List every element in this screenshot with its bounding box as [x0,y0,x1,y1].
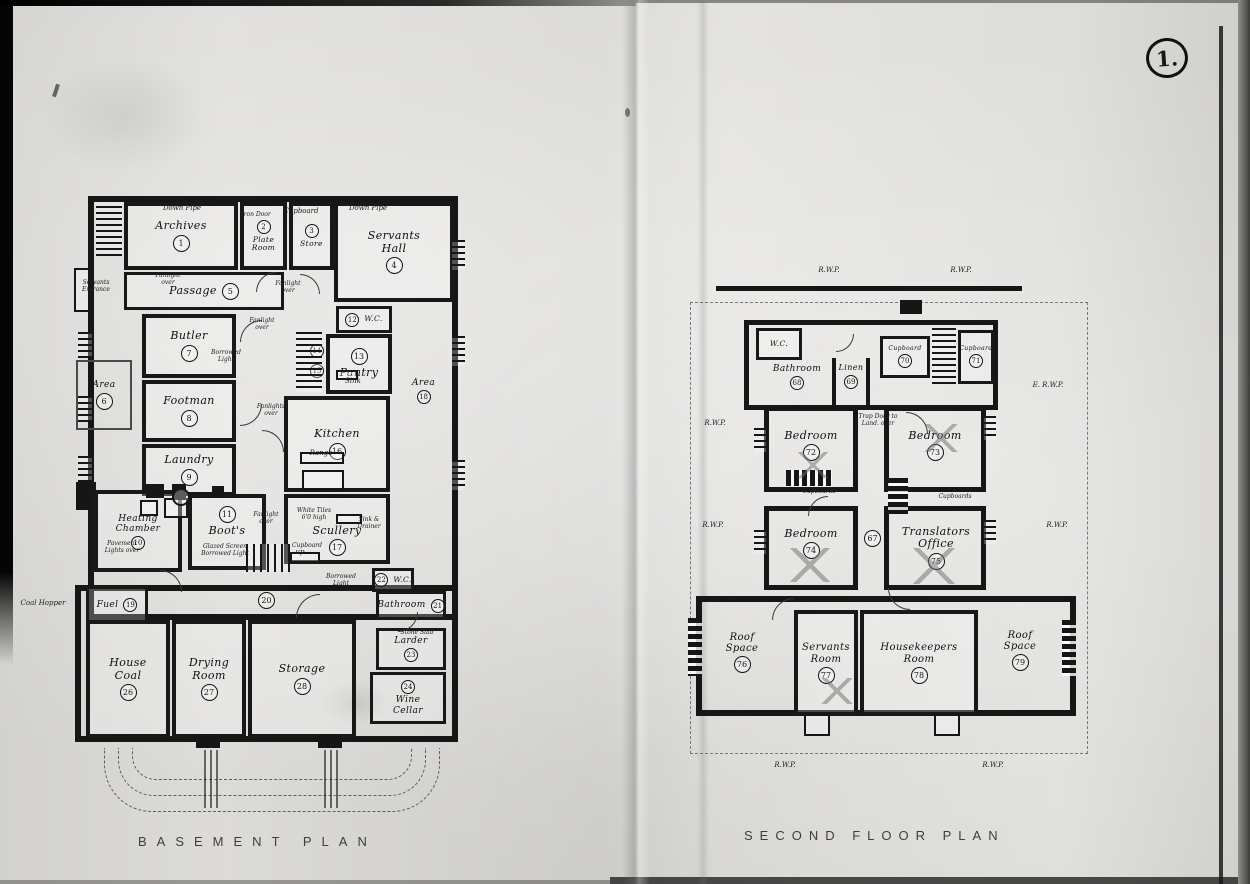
solid-wall-block [146,484,164,498]
room-number-circle: 20 [258,592,275,609]
paper-stain [40,55,210,175]
room-number-circle: 13 [351,348,368,365]
room-number-circle: 24 [401,680,415,694]
page-number: 1. [1155,45,1179,71]
room-wc-12: 12 W.C. [336,306,392,333]
room-archives: Archives 1 [124,202,238,270]
room-wc-22: 22 W.C. [372,568,414,592]
note-fanlight-over: Fanlight over [242,318,282,332]
room-footman: Footman 8 [142,380,236,442]
room-linen: Linen 69 [836,364,866,389]
note-cupboards: Cupboards [798,489,840,496]
note-rwp: R.W.P. [1038,521,1076,529]
corridor-number: 20 [258,592,275,609]
room-number-circle: 11 [219,506,236,523]
note-rwp: R.W.P. [696,521,730,529]
solid-wall-block [318,734,342,748]
room-label: Wine Cellar [384,695,432,715]
pencil-x-mark [912,548,956,584]
room-house-coal: House Coal 26 [86,620,170,738]
note-fanlight-over: Fanlight over [246,512,286,526]
roof-access-bump [934,714,960,736]
note-borrowed-light: Borrowed Light [204,350,248,364]
room-label: W.C. [770,340,788,348]
room-number-circle: 22 [374,573,388,587]
room-cupboard-71: Cupboard 71 [958,330,994,384]
room-label: Butler [170,330,207,342]
boiler-fixture [140,500,158,516]
window-hatch [78,332,92,358]
room-number-circle: 71 [969,354,983,368]
room-number-circle: 69 [844,375,858,389]
room-label: Roof Space [1000,630,1040,652]
room-label: Archives [155,220,207,232]
window-hatch [452,240,465,270]
landing-number: 67 [864,530,881,547]
terrace-hatch [204,750,218,808]
room-number-circle: 19 [123,598,137,612]
room-number-circle: 6 [96,393,113,410]
room-number-circle: 68 [790,376,804,390]
room-number-circle: 28 [294,678,311,695]
room-label: Cupboard [959,346,992,353]
room-label: Linen [839,364,864,373]
kitchen-table-fixture [302,470,344,490]
note-fanlight-over: Fanlights over [250,404,292,418]
photo-edge-top [0,0,636,6]
note-rwp: R.W.P. [942,266,980,274]
room-label: Larder [394,636,427,646]
terrace-steps [132,748,412,780]
roof-access-bump [804,714,830,736]
room-wine-cellar: 24 Wine Cellar [370,672,446,724]
room-number-circle: 8 [181,410,198,427]
photo-edge-right [1238,0,1250,884]
room-number-circle: 3 [305,224,319,238]
room-wc-2f: W.C. [756,328,802,360]
room-number-circle: 18 [417,390,431,404]
room-label: Laundry [164,454,213,466]
cupboard-fitting [888,478,908,514]
room-label: Bedroom [784,430,837,442]
note-sink: Sink [342,377,364,385]
note-servants-entrance: Servants Entrance [78,280,114,294]
note-cupboard: Cupboard [280,207,322,215]
room-number-circle: 27 [201,684,218,701]
solid-wall-block [76,482,96,510]
window-hatch [452,460,465,490]
room-label: Footman [163,395,215,407]
photo-edge-top-right [636,0,1250,3]
pencil-x-mark [796,452,830,478]
window-hatch [754,428,766,452]
room-housekeepers-room: Housekeepers Room 78 [860,610,978,716]
room-cupboard-70: Cupboard 70 [880,336,930,378]
solid-wall-block [196,734,220,748]
room-number-circle: 4 [386,257,403,274]
room-label: Boot's [209,525,246,537]
boiler-fixture [172,488,190,506]
room-number-circle: 5 [222,283,239,300]
room-label: Heating Chamber [108,514,168,534]
room-drying-room: Drying Room 27 [172,620,246,738]
room-label: W.C. [364,315,382,323]
window-bay [1062,620,1076,676]
room-label: Bedroom [784,528,837,540]
room-label: Plate Room [244,236,283,253]
room-label: Cupboard [888,346,921,353]
back-stairs-hatch [296,332,322,392]
note-glazed-screen: Glazed Screen Borrowed Light [198,544,252,558]
second-floor-parapet-wall [716,286,1022,291]
scanned-drawing-sheet: 1. Archives 1 2 Plate Room 3 Store Serva… [0,0,1250,884]
room-number-circle: 1 [173,235,190,252]
note-down-pipe: Down Pipe [344,204,392,212]
room-label: Area [92,380,115,390]
room-label: Bathroom [773,364,821,374]
note-rwp: R.W.P. [766,761,804,769]
room-roof-space-east: Roof Space 79 [990,630,1050,671]
window-hatch [452,336,465,366]
room-label: Bathroom [377,600,425,610]
note-rwp: R.W.P. [974,761,1012,769]
stairs-hatch [246,544,290,572]
room-number-circle: 17 [329,539,346,556]
note-cupboards: Cupboards [934,494,976,501]
basement-plan-title: BASEMENT PLAN [138,834,377,849]
window-hatch [984,520,996,544]
photo-edge-left [0,0,13,665]
room-fuel: Fuel 19 [86,586,148,624]
stairs-hatch-2f [932,328,956,384]
window-hatch [984,416,996,440]
note-fanlight-over: Fanlight over [148,273,188,287]
page-number-stamp: 1. [1145,37,1190,80]
note-sink-drainer: Sink & Drainer [348,517,390,531]
window-hatch [78,456,92,482]
note-trap-door: Trap Door to Land. over [856,414,900,428]
room-storage: Storage 28 [248,620,356,738]
room-label: Drying Room [186,657,232,682]
room-number-circle: 7 [181,345,198,362]
room-label: Fuel [97,600,119,610]
second-floor-plan-title: SECOND FLOOR PLAN [744,828,1005,843]
room-number-circle: 12 [345,313,359,327]
note-range: Range [306,449,336,457]
photo-edge-right-line [1219,26,1223,884]
room-label: Housekeepers Room [877,642,961,664]
room-number-circle: 78 [911,667,928,684]
note-iron-door: Iron Door [236,212,276,219]
room-number-circle: 79 [1012,654,1029,671]
room-label: Storage [279,663,326,675]
note-down-pipe: Down Pipe [158,204,206,212]
note-erwp: E. R.W.P. [1026,381,1070,389]
room-number-circle: 67 [864,530,881,547]
note-pavement-lights: Pavement Lights over [97,541,147,555]
chimney-block [900,300,922,314]
room-label: Store [300,240,323,248]
exterior-stairs-hatch [96,200,122,256]
note-white-tiles: White Tiles 6'0 high [292,508,336,522]
room-label: Area [412,378,435,388]
partition-wall [866,358,870,406]
room-bathroom-2f: Bathroom 68 [762,364,832,390]
pencil-x-mark [788,548,832,582]
solid-wall-block [212,486,224,498]
room-label: House Coal [103,657,153,682]
note-fanlight-over: Fanlight over [268,281,308,295]
note-rwp: R.W.P. [810,266,848,274]
room-label: Translators Office [901,526,971,551]
room-number-circle: 70 [898,354,912,368]
room-number-circle: 23 [404,648,418,662]
window-hatch [78,396,92,422]
pencil-x-mark [920,424,962,452]
note-up: up [292,548,308,556]
window-hatch [754,530,766,554]
room-label: Servants Room [800,642,852,664]
window-bay [688,618,702,676]
room-number-circle: 26 [120,684,137,701]
photo-edge-bottom-left [0,880,610,884]
room-number-circle: 21 [431,599,445,613]
paper-fold-center [622,0,650,884]
terrace-hatch [324,750,338,808]
note-rwp: R.W.P. [698,419,732,427]
room-label: W.C. [393,576,411,584]
room-label: Kitchen [314,428,360,440]
room-label: Servants Hall [359,230,429,255]
room-butler: Butler 7 [142,314,236,378]
pencil-x-mark [818,678,856,704]
room-number-circle: 2 [257,220,271,234]
room-label: Roof Space [722,632,762,654]
note-borrowed-light: Borrowed Light [318,574,364,588]
room-roof-space-west: Roof Space 76 [712,632,772,673]
paper-mark [625,108,630,117]
room-number-circle: 76 [734,656,751,673]
note-coal-hopper: Coal Hopper [20,599,66,607]
note-stone-slab: Stone Slab [396,630,438,637]
room-servants-hall: Servants Hall 4 [334,202,454,302]
room-area-east: Area 18 [412,378,435,404]
